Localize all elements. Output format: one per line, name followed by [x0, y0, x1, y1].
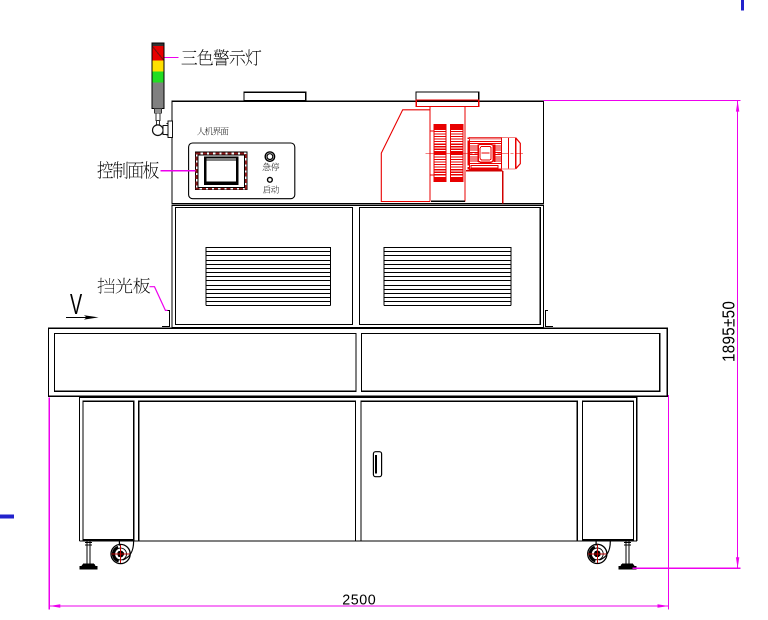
svg-text:1895±50: 1895±50	[719, 301, 738, 362]
svg-text:V: V	[70, 289, 82, 321]
svg-text:2500: 2500	[342, 593, 376, 609]
